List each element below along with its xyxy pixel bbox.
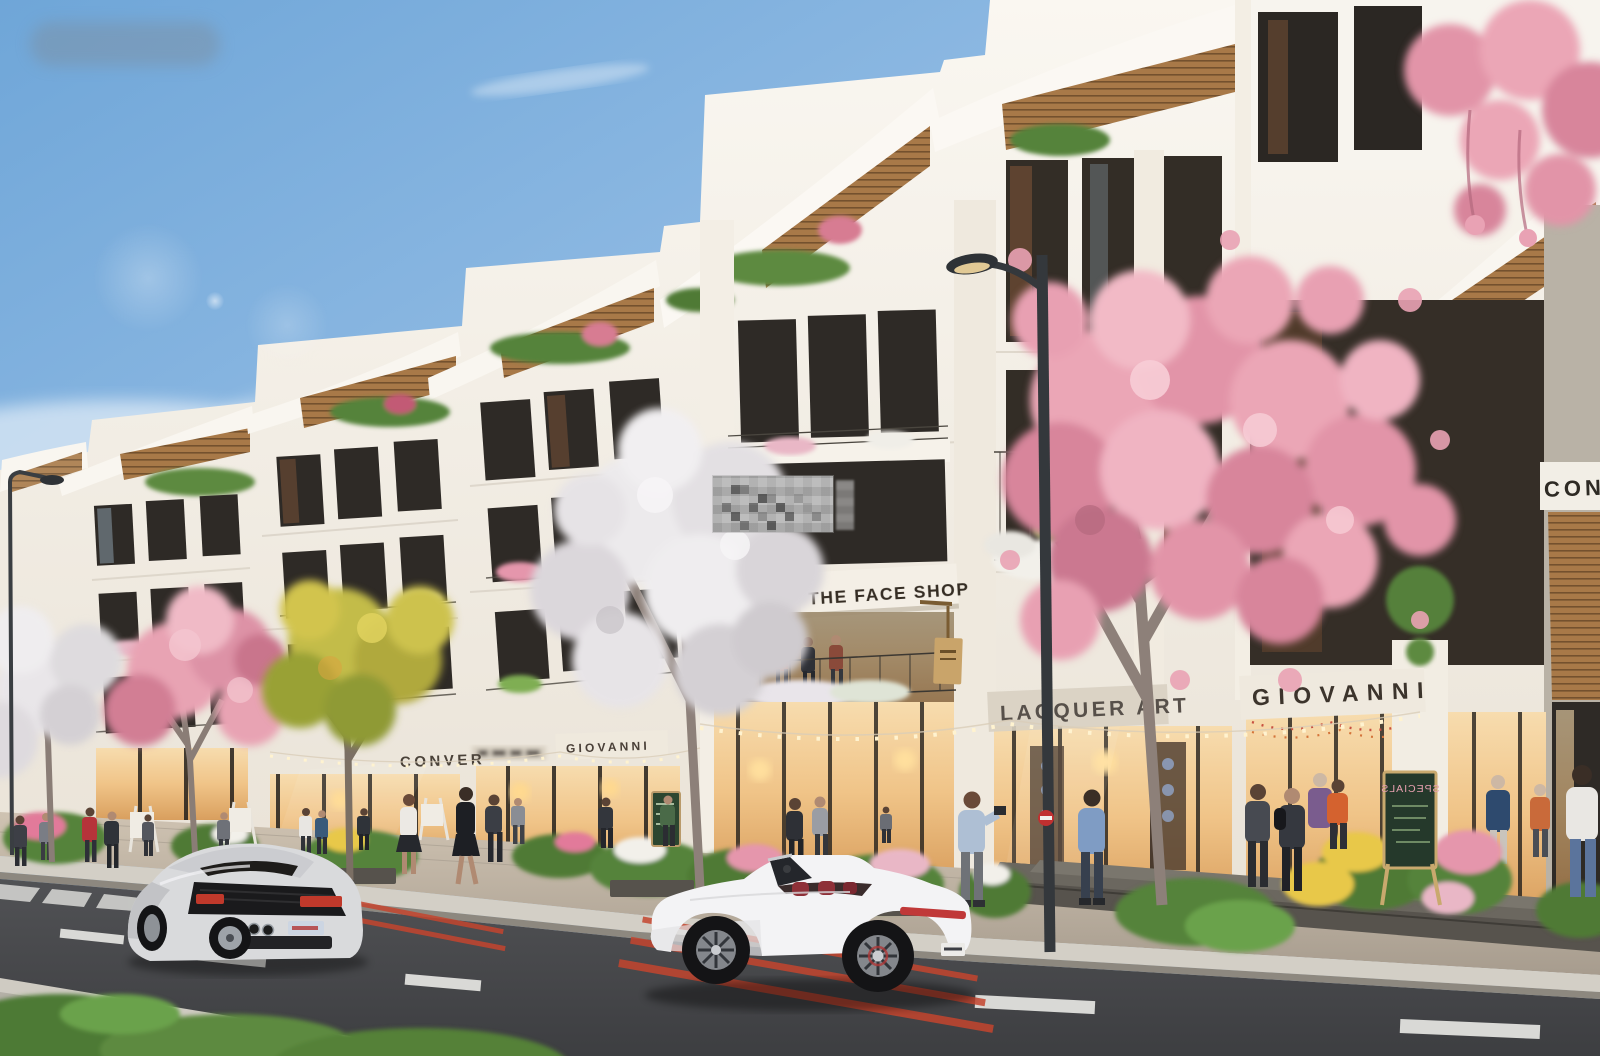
chalkboard-text: SPECIALS (1380, 783, 1439, 795)
lens-flare (92, 222, 204, 334)
taillight-right (300, 896, 342, 907)
pixelated-watermark-edge (836, 480, 854, 530)
lens-flare (244, 282, 330, 368)
lens-flare (206, 292, 224, 310)
sign-giovanni-left: GIOVANNI (566, 739, 650, 756)
street-render: CONVER GIOVANNI THE FACE SHOP LACQUER AR… (0, 0, 1600, 1056)
pixelated-watermark (713, 476, 833, 532)
taillight-left (196, 894, 224, 904)
side-mirror (783, 865, 791, 873)
seat-red (792, 882, 809, 896)
smudge-watermark (30, 22, 220, 66)
sign-corner-con: CON (1544, 475, 1600, 502)
